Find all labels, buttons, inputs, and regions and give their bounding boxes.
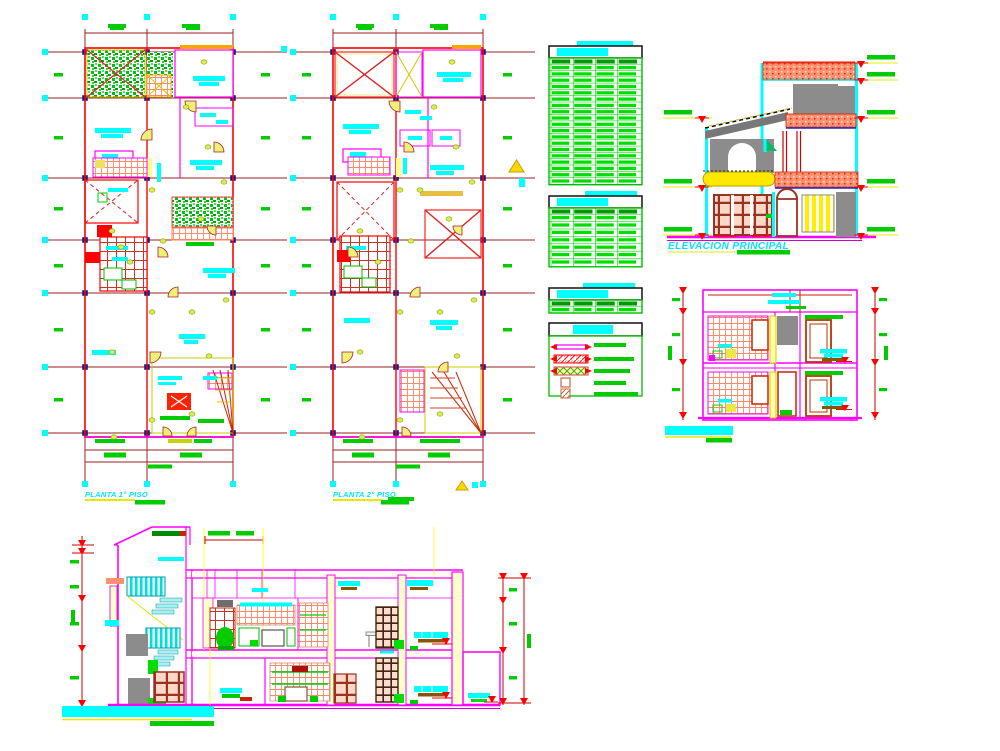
cad-canvas: PLANTA 1° PISO PLANTA 2° PISO ELEVACION … [0, 0, 1000, 751]
plan1-title: PLANTA 1° PISO [85, 490, 148, 499]
elevation-title: ELEVACION PRINCIPAL [668, 241, 789, 252]
cad-sheet: PLANTA 1° PISO PLANTA 2° PISO ELEVACION … [0, 0, 1000, 751]
legend-box [549, 323, 642, 398]
plan2-title: PLANTA 2° PISO [333, 490, 396, 499]
